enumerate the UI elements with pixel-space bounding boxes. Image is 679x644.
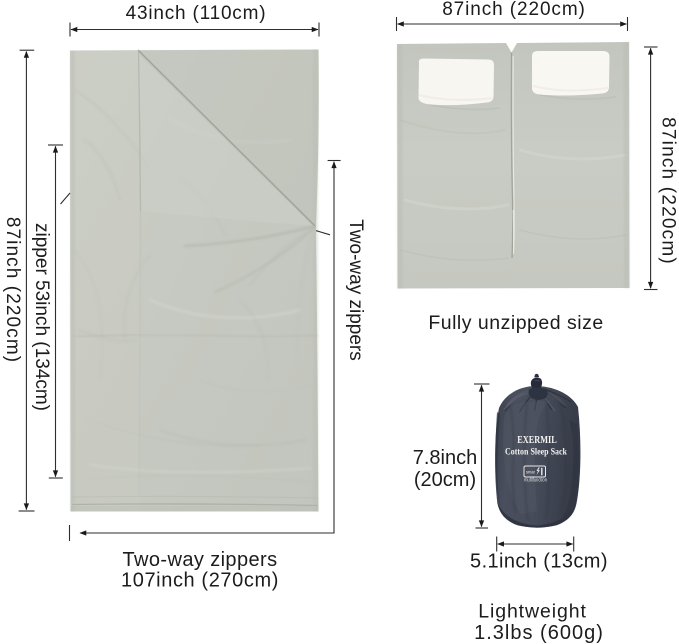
svg-text:(20cm): (20cm) <box>414 469 476 491</box>
svg-text:EXERMIL: EXERMIL <box>517 435 557 446</box>
svg-text:7.8inch: 7.8inch <box>413 447 478 469</box>
svg-text:87inch (220cm): 87inch (220cm) <box>442 0 586 20</box>
svg-text:87inch (220cm): 87inch (220cm) <box>657 117 678 265</box>
svg-text:87inch (220cm): 87inch (220cm) <box>2 217 23 363</box>
svg-text:Fully unzipped size: Fully unzipped size <box>428 312 603 334</box>
svg-text:Two-way zippers: Two-way zippers <box>345 219 366 361</box>
svg-text:43inch (110cm): 43inch (110cm) <box>126 3 267 24</box>
svg-text:smar: smar <box>526 470 535 475</box>
svg-text:107inch (270cm): 107inch (270cm) <box>121 570 279 592</box>
svg-text:1.3lbs (600g): 1.3lbs (600g) <box>474 622 604 644</box>
svg-text:zipper 53inch (134cm): zipper 53inch (134cm) <box>31 223 52 411</box>
svg-text:5.1inch (13cm): 5.1inch (13cm) <box>470 551 608 573</box>
svg-text:Two-way zippers: Two-way zippers <box>123 549 278 571</box>
svg-text:Cotton Sleep Sack: Cotton Sleep Sack <box>505 447 567 457</box>
svg-text:Lightweight: Lightweight <box>478 601 587 623</box>
svg-text:multifunction: multifunction <box>524 478 547 484</box>
